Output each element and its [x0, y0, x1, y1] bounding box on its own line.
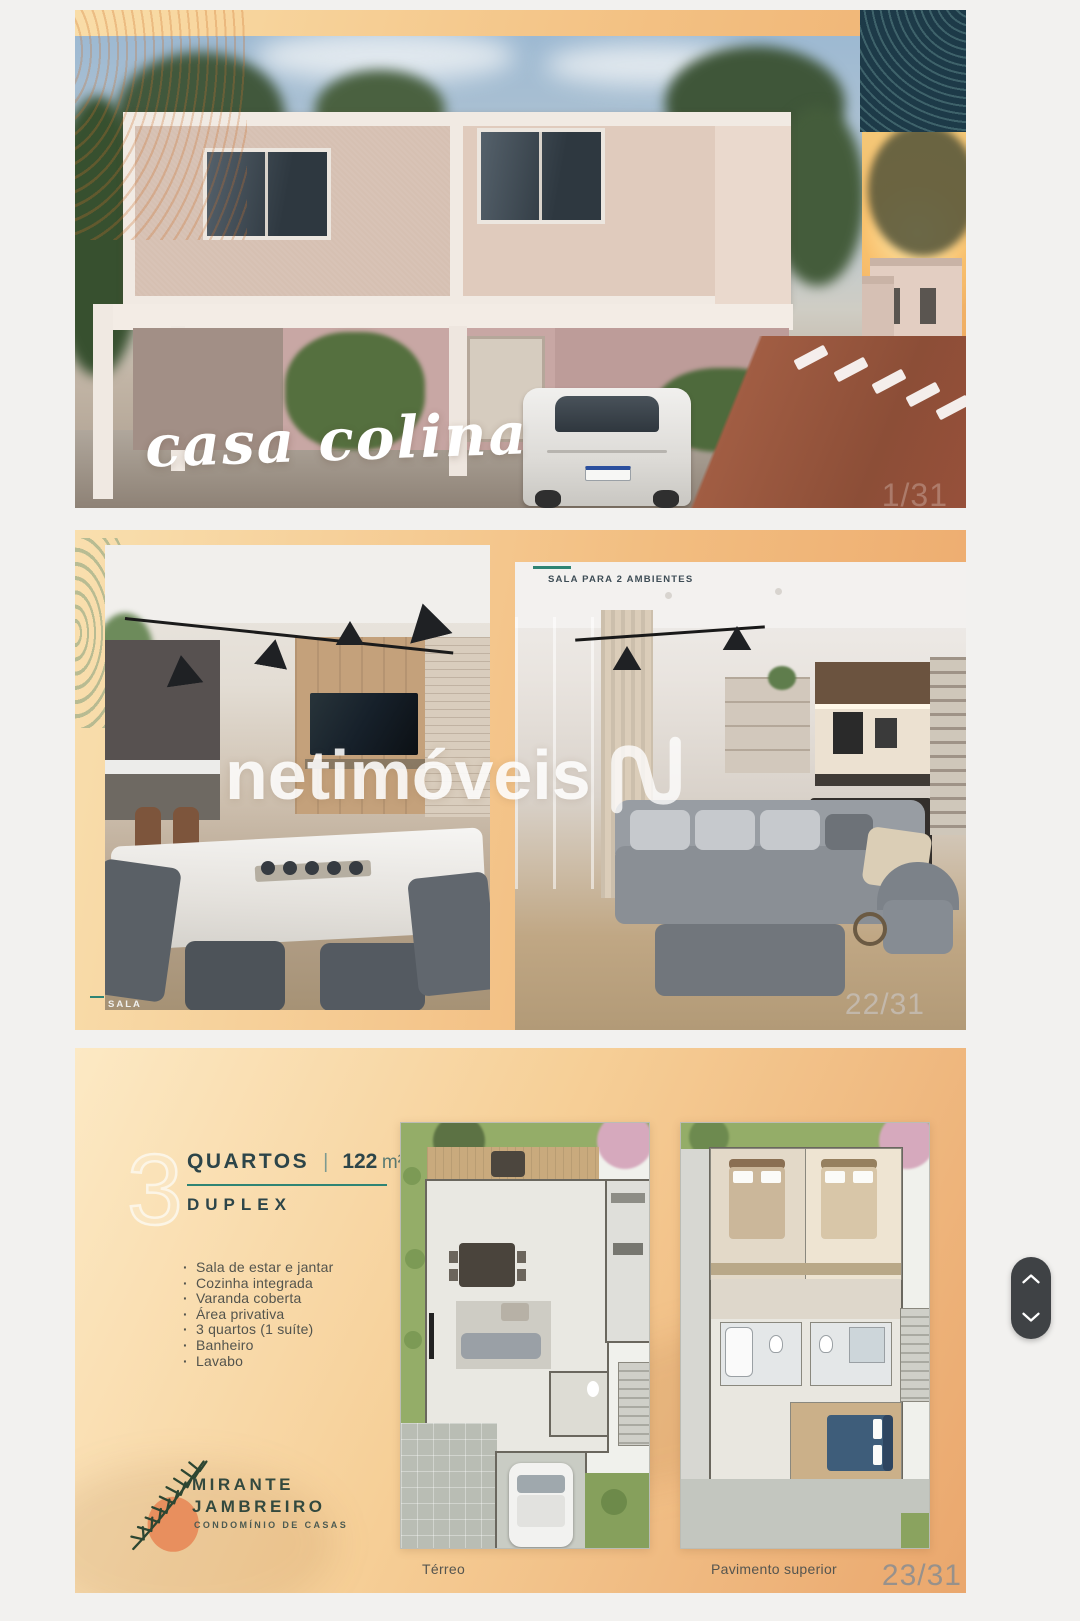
separator: |: [323, 1151, 328, 1174]
brick-wall: [425, 637, 490, 817]
slide-floorplan: 3 QUARTOS | 122 m² DUPLEX Sala de estar …: [75, 1048, 966, 1593]
plan-label-pavimento-superior: Pavimento superior: [711, 1561, 837, 1577]
room-label: SALA: [108, 999, 142, 1010]
dining-chair: [320, 943, 425, 1010]
tv: [310, 693, 418, 755]
kitchen-dining-photo: [105, 545, 490, 1010]
contour-pattern-decoration: [75, 10, 247, 240]
brand-tagline: CONDOMÍNIO DE CASAS: [194, 1520, 348, 1530]
dining-chair: [105, 858, 182, 1003]
dining-chair: [185, 941, 285, 1010]
area-value: 122 m²: [342, 1150, 404, 1174]
floor-plan-pavimento-superior: Pavimento superior: [680, 1122, 930, 1549]
page-indicator: 22/31: [845, 988, 925, 1022]
cushion: [695, 810, 755, 850]
floorplan-title: QUARTOS | 122 m² DUPLEX: [187, 1150, 404, 1215]
roof-pavers: [681, 1479, 929, 1548]
toilet: [819, 1335, 833, 1353]
window: [477, 128, 605, 224]
feature-item: Cozinha integrada: [183, 1276, 333, 1292]
coffee-table: [501, 1303, 529, 1321]
feature-item: 3 quartos (1 suíte): [183, 1322, 333, 1338]
cushion: [630, 810, 690, 850]
wardrobe: [806, 1263, 901, 1275]
feature-list: Sala de estar e jantar Cozinha integrada…: [183, 1260, 333, 1369]
appliance: [833, 712, 863, 754]
dining-chair: [407, 871, 490, 997]
chevron-down-icon: [1022, 1312, 1040, 1323]
brand-logo: MIRANTE JAMBREIRO CONDOMÍNIO DE CASAS: [120, 1448, 400, 1558]
feature-item: Área privativa: [183, 1307, 333, 1323]
toilet: [769, 1335, 783, 1353]
ottoman: [655, 924, 845, 996]
plant: [768, 666, 796, 690]
stairs: [901, 1309, 929, 1401]
patio-pavers: [401, 1423, 497, 1548]
plan-car: [509, 1463, 573, 1547]
bedroom-count: 3: [127, 1140, 183, 1240]
slide-exterior-render: casa colina 1/31: [75, 10, 966, 508]
pendant-lamp: [333, 621, 367, 645]
title-underline: [187, 1184, 387, 1186]
bathtub: [725, 1327, 753, 1377]
pendant-lamp: [251, 636, 295, 671]
ceiling-spotlight: [665, 592, 672, 599]
carousel-nav: [1011, 1257, 1051, 1339]
bar-stool: [135, 807, 161, 849]
tv: [429, 1313, 434, 1359]
stairs: [619, 1363, 649, 1445]
feature-item: Banheiro: [183, 1338, 333, 1354]
scroll-down-button[interactable]: [1011, 1300, 1051, 1334]
floor-plan-terreo: Térreo: [400, 1122, 650, 1549]
lavabo: [551, 1373, 607, 1435]
label-accent-line: [90, 996, 104, 998]
appliance: [875, 718, 897, 748]
dining-table: [459, 1243, 515, 1287]
page-indicator: 1/31: [882, 477, 948, 508]
living-room-photo: [515, 562, 966, 1030]
listing-gallery-page: casa colina 1/31: [0, 0, 1080, 1621]
shower: [849, 1327, 885, 1363]
shelf-unit: [725, 677, 810, 773]
deck-table: [491, 1151, 525, 1177]
label-accent-line: [533, 566, 571, 569]
scroll-up-button[interactable]: [1011, 1262, 1051, 1296]
tree: [597, 1123, 649, 1169]
page-indicator: 23/31: [882, 1559, 962, 1593]
subtype-label: DUPLEX: [187, 1195, 404, 1215]
wardrobe: [711, 1263, 806, 1275]
ceiling-spotlight: [775, 588, 782, 595]
feature-item: Lavabo: [183, 1354, 333, 1370]
side-table: [853, 912, 887, 946]
cover-script-title: casa colina: [144, 399, 529, 480]
feature-item: Sala de estar e jantar: [183, 1260, 333, 1276]
cabinet: [930, 657, 966, 835]
rooms-word: QUARTOS: [187, 1150, 309, 1174]
chevron-up-icon: [1022, 1273, 1040, 1284]
sofa: [461, 1333, 541, 1359]
brand-name: MIRANTE JAMBREIRO: [192, 1474, 326, 1518]
feature-item: Varanda coberta: [183, 1291, 333, 1307]
kitchen: [607, 1181, 649, 1341]
hallway: [711, 1279, 901, 1319]
slide-interiors: SALA PARA 2 AMBIENTES SALA netimóveis 22…: [75, 530, 966, 1030]
contour-pattern-navy: [860, 10, 966, 132]
room-label: SALA PARA 2 AMBIENTES: [548, 574, 693, 585]
license-plate: [585, 466, 631, 481]
cushion: [760, 810, 820, 850]
plan-label-terreo: Térreo: [422, 1561, 465, 1577]
